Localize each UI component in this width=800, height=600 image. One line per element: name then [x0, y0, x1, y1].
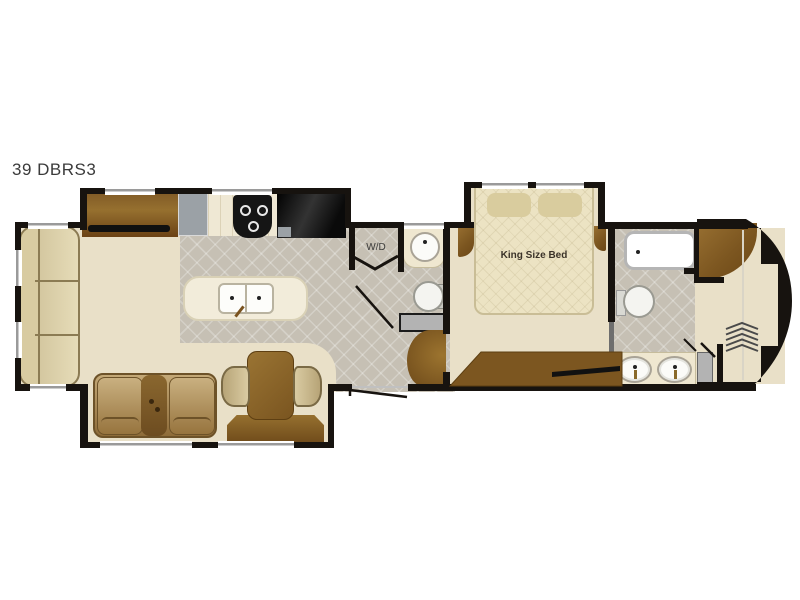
front-cap: [697, 219, 792, 391]
half-bath-door-swing: [356, 286, 393, 328]
hanging-clothes-icon: [726, 323, 758, 351]
entry-door-swing: [350, 390, 407, 397]
washer-dryer-label: W/D: [350, 242, 402, 253]
wd-bifold-door: [352, 256, 398, 269]
model-label: 39 DBRS3: [12, 160, 152, 180]
bath-closet-door-swing: [684, 339, 696, 351]
overlay-shapes: [0, 0, 800, 600]
closet-door-swing: [701, 343, 715, 357]
rv-floorplan: King Size Bed: [0, 0, 800, 600]
